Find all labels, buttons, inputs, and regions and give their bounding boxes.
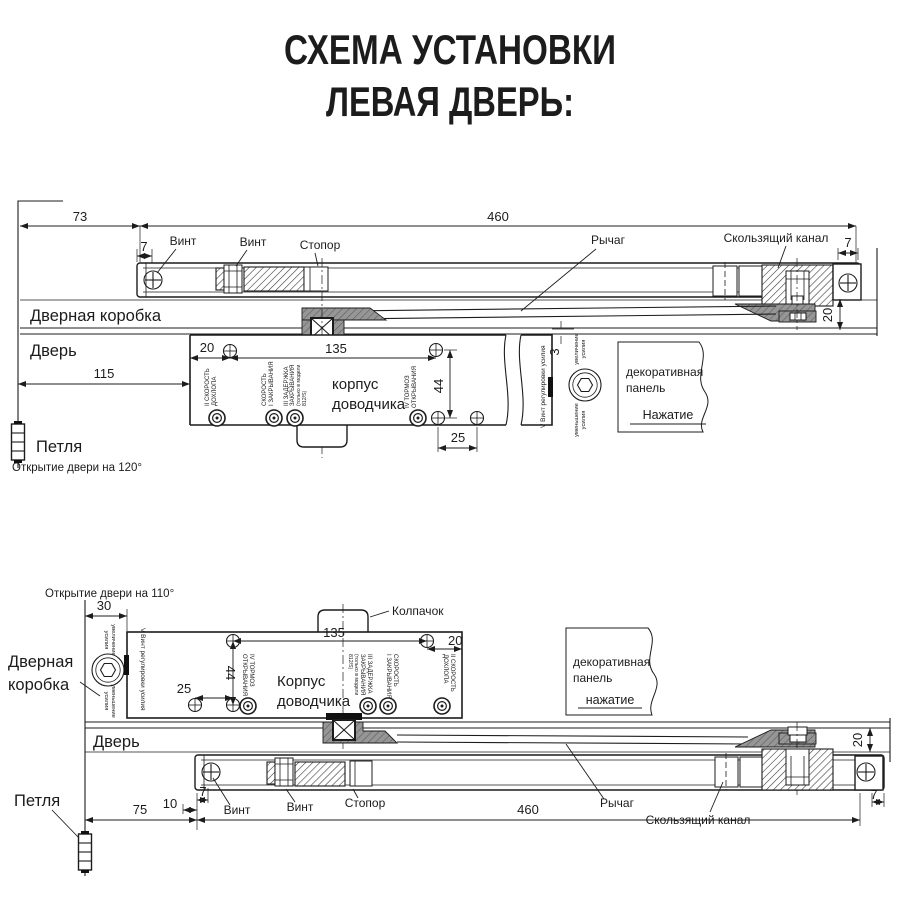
upper-dim-25: 25 [451,430,465,445]
page-title: СХЕМА УСТАНОВКИ ЛЕВАЯ ДВЕРЬ: [284,26,616,125]
upper-dim-73: 73 [73,209,87,224]
mount-screw-icon [430,344,443,357]
lower-body-label-1: Корпус [277,673,326,690]
lower-vint-mid-label: Винт [287,800,314,814]
lower-vint-left-label: Винт [224,803,251,817]
installation-diagram-page: СХЕМА УСТАНОВКИ ЛЕВАЯ ДВЕРЬ: 73 460 7 [0,0,900,900]
upper-dim-7-left: 7 [140,239,147,254]
lower-dim-135: 135 [323,625,345,640]
upper-slide-rail [137,262,861,306]
rail-end-screw-icon [144,271,162,289]
rail-stopper-block [304,267,328,291]
valve-latch-label-1: II СКОРОСТЬ [449,654,455,692]
decrease-force-label-2: усилия [103,692,109,711]
rail-hatched-block [295,762,345,786]
upper-panel-label-2: панель [626,381,665,395]
valve-backcheck-label-1: IV ТОРМОЗ [248,654,254,687]
upper-door-label: Дверь [30,342,77,360]
hinge-icon [79,831,92,873]
rail-end-screw-icon [839,274,857,292]
upper-dim-7-right: 7 [844,235,851,250]
lower-sliding-channel-label: Скользящий канал [646,813,751,827]
lever-top-edge [397,735,748,737]
valve-delay-icon [360,698,376,714]
lower-frame-label-1: Дверная [8,653,73,671]
upper-panel-label-1: декоративная [626,365,703,379]
decrease-force-label-1: уменьшение [110,684,116,718]
upper-frame-label: Дверная коробка [30,307,162,325]
valve-latch-speed-icon [209,410,225,426]
mount-screw-icon [224,345,237,358]
upper-dim-460: 460 [487,209,509,224]
valve-power-label: V Винт регулировки усилия [540,345,547,428]
title-line-1: СХЕМА УСТАНОВКИ [284,26,616,73]
valve-closing-speed-icon [380,698,396,714]
lower-body-label-2: доводчика [277,693,351,710]
upper-vint-mid-label: Винт [240,235,267,249]
lower-panel-label-2: панель [573,671,612,685]
lower-dim-20: 20 [448,633,462,648]
mount-screw-icon [189,699,202,712]
mount-screw-icon [432,412,445,425]
hex-adjuster-icon [92,654,124,686]
lower-dim-10: 10 [163,796,177,811]
lever-bottom-edge [344,314,776,319]
lower-dim-75: 75 [133,802,147,817]
valve-power-label: V Винт регулировки усилия [139,628,146,711]
lower-dim-25: 25 [177,681,191,696]
hinge-icon [12,421,25,463]
upper-dim-135: 135 [325,341,347,356]
hex-adjuster-icon [569,369,601,401]
upper-hinge-label: Петля [36,438,82,456]
lever-top-edge [344,306,776,311]
upper-dim-20-body: 20 [200,340,214,355]
valve-close-label-2: I ЗАКРЫВАНИЯ [269,361,275,406]
upper-dim-115: 115 [94,366,115,381]
upper-dim-3: 3 [547,348,562,355]
upper-decorative-panel: декоративная панель Нажатие [618,342,708,432]
rail-end-screw-icon [857,763,875,781]
increase-force-label-1: увеличение [110,624,116,655]
mount-screw-icon [471,412,484,425]
lever-bottom-edge [397,742,748,744]
valve-backcheck-icon [240,698,256,714]
upper-closer-body: корпус доводчика II СКОРОСТЬ ДОХЛОПА СКО… [190,335,553,447]
upper-diagram: 73 460 7 [12,201,878,474]
lower-door-label: Дверь [93,733,140,751]
valve-backcheck-label-2: ОТКРЫВАНИЯ [412,366,418,408]
diagram-canvas: СХЕМА УСТАНОВКИ ЛЕВАЯ ДВЕРЬ: 73 460 7 [0,0,900,900]
upper-body-label-1: корпус [332,376,379,393]
lower-decorative-panel: декоративная панель нажатие [566,628,657,715]
lower-hinge-label: Петля [14,792,60,810]
lower-slide-rail [195,749,884,790]
upper-dim-20-right: 20 [820,308,835,322]
valve-close-label-1: СКОРОСТЬ [392,654,398,687]
increase-force-label-1: увеличение [574,333,580,364]
lower-dim-7-left: 7 [199,784,206,799]
rail-end-screw-icon [202,763,220,781]
lower-force-adjuster: увеличение усилия уменьшение усилия [92,624,124,718]
valve-close-label-2: I ЗАКРЫВАНИЯ [385,654,391,699]
lower-dim-20-right: 20 [850,733,865,747]
lower-panel-label-1: декоративная [573,655,650,669]
power-adjust-slot [548,377,553,397]
upper-body-label-2: доводчика [332,396,406,413]
upper-opening-note: Открытие двери на 120° [12,462,142,474]
lower-cap-label: Колпачок [392,604,444,618]
upper-sliding-channel-label: Скользящий канал [724,231,829,245]
power-adjust-slot [124,655,129,675]
valve-closing-speed-icon [266,410,282,426]
increase-force-label-2: усилия [103,631,109,650]
upper-vint-left-label: Винт [170,234,197,248]
upper-force-adjuster: увеличение усилия уменьшение усилия [569,333,601,437]
rail-hatched-block [244,267,304,291]
valve-latch-speed-icon [434,698,450,714]
title-line-2: ЛЕВАЯ ДВЕРЬ: [326,78,574,125]
lower-press-label: нажатие [586,693,635,707]
valve-delay-icon [287,410,303,426]
valve-close-label-1: СКОРОСТЬ [262,373,268,406]
upper-dim-44: 44 [431,379,446,393]
lower-dim-7-right: 7 [870,787,877,802]
upper-press-label: Нажатие [643,408,694,422]
lower-dim-30: 30 [97,598,111,613]
rail-stopper-block [350,761,372,786]
valve-backcheck-label-2: ОТКРЫВАНИЯ [241,654,247,696]
upper-stopor-label: Стопор [300,238,341,252]
lower-dim-460: 460 [517,802,539,817]
lower-stopor-label: Стопор [345,796,386,810]
valve-backcheck-label-1: IV ТОРМОЗ [405,375,411,408]
upper-rychag-label: Рычаг [591,233,626,247]
lower-diagram: Открытие двери на 110° 30 увеличение уси… [8,588,890,876]
valve-delay-label-4: 812/S) [302,390,308,406]
decrease-force-label-1: уменьшение [574,403,580,437]
body-cap [297,425,347,447]
valve-latch-label-2: ДОХЛОПА [442,654,448,683]
lower-frame-label-2: коробка [8,676,70,694]
lower-dim-44: 44 [223,666,238,680]
valve-delay-label-4: 812/S) [347,654,353,670]
valve-latch-label-2: ДОХЛОПА [212,377,218,406]
valve-backcheck-icon [410,410,426,426]
valve-delay-label-1: III ЗАДЕРЖКА [366,654,372,694]
increase-force-label-2: усилия [581,340,587,359]
valve-latch-label-1: II СКОРОСТЬ [205,368,211,406]
lower-rychag-label: Рычаг [600,796,635,810]
decrease-force-label-2: усилия [581,411,587,430]
